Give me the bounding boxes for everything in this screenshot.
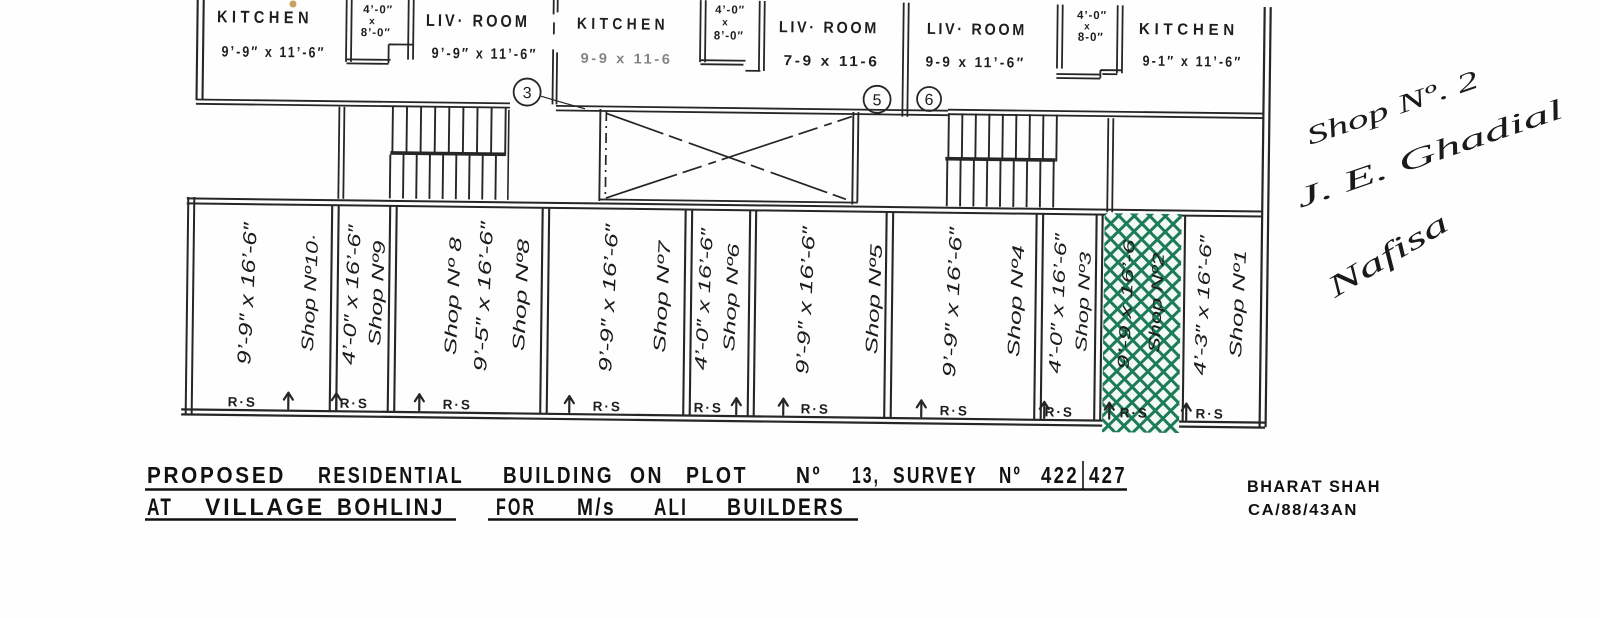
svg-text:R·S: R·S: [593, 399, 622, 414]
svg-text:4’-0″ x 16’-6″: 4’-0″ x 16’-6″: [1045, 232, 1071, 374]
svg-text:Nº: Nº: [796, 462, 822, 488]
svg-text:8’-0″: 8’-0″: [714, 28, 744, 42]
svg-text:R·S: R·S: [1196, 406, 1225, 421]
svg-text:9’-9″ x 16’-6″: 9’-9″ x 16’-6″: [595, 223, 622, 373]
svg-text:R·S: R·S: [443, 397, 472, 412]
svg-text:Nafisa: Nafisa: [1320, 206, 1454, 305]
svg-text:Shop Nº7: Shop Nº7: [650, 240, 674, 354]
svg-text:R·S: R·S: [1045, 404, 1074, 419]
svg-text:LIV· ROOM: LIV· ROOM: [927, 21, 1027, 39]
svg-text:BUILDERS: BUILDERS: [727, 494, 845, 521]
svg-text:9’-9″ x 16’-6″: 9’-9″ x 16’-6″: [792, 225, 819, 375]
svg-text:KITCHEN: KITCHEN: [217, 7, 313, 27]
svg-text:ON: ON: [630, 462, 664, 488]
svg-text:8’-0″: 8’-0″: [361, 27, 391, 39]
svg-text:Shop Nº4: Shop Nº4: [1004, 245, 1028, 358]
svg-text:4’-0″ x 16’-6″: 4’-0″ x 16’-6″: [691, 226, 717, 370]
svg-text:R·S: R·S: [801, 401, 830, 416]
svg-text:FOR: FOR: [496, 494, 536, 521]
svg-text:9’-9″ x 16’-6″: 9’-9″ x 16’-6″: [234, 221, 262, 365]
svg-text:9-9 x 11-6: 9-9 x 11-6: [580, 50, 672, 67]
svg-text:R·S: R·S: [228, 394, 257, 409]
svg-text:BHARAT SHAH: BHARAT SHAH: [1247, 478, 1381, 496]
svg-text:9-1″ x 11’-6″: 9-1″ x 11’-6″: [1142, 54, 1242, 71]
svg-text:4’-0″: 4’-0″: [715, 4, 745, 16]
svg-text:KITCHEN: KITCHEN: [1139, 21, 1239, 39]
svg-text:VILLAGE: VILLAGE: [205, 494, 325, 521]
svg-text:Shop Nº10·: Shop Nº10·: [298, 233, 323, 352]
svg-text:RESIDENTIAL: RESIDENTIAL: [318, 462, 464, 488]
svg-text:ALI: ALI: [654, 494, 688, 521]
svg-text:4’-0″ x 16’-6″: 4’-0″ x 16’-6″: [338, 224, 365, 366]
svg-text:CA/88/43AN: CA/88/43AN: [1248, 502, 1358, 519]
svg-text:BUILDING: BUILDING: [503, 462, 614, 488]
svg-text:LIV· ROOM: LIV· ROOM: [779, 19, 879, 37]
svg-text:AT: AT: [147, 494, 173, 521]
svg-text:PLOT: PLOT: [686, 462, 748, 488]
svg-text:8-0″: 8-0″: [1078, 30, 1104, 44]
svg-text:R·S: R·S: [340, 396, 369, 411]
svg-text:4’-0″: 4’-0″: [363, 4, 393, 16]
svg-text:9’-9″ x 16’-6″: 9’-9″ x 16’-6″: [939, 226, 966, 378]
svg-text:Shop Nº6: Shop Nº6: [721, 243, 743, 352]
svg-text:Shop Nº3: Shop Nº3: [1073, 251, 1095, 352]
svg-text:9’-9″ x 11’-6″: 9’-9″ x 11’-6″: [221, 43, 325, 61]
svg-text:KITCHEN: KITCHEN: [577, 16, 669, 34]
svg-text:SURVEY: SURVEY: [893, 462, 978, 488]
svg-text:PROPOSED: PROPOSED: [147, 462, 286, 488]
svg-text:3: 3: [523, 85, 532, 102]
svg-text:x: x: [722, 17, 728, 28]
svg-text:BOHLINJ: BOHLINJ: [337, 494, 445, 521]
svg-text:4’-3″ x 16’-6″: 4’-3″ x 16’-6″: [1190, 234, 1216, 376]
svg-text:LIV· ROOM: LIV· ROOM: [426, 11, 530, 31]
svg-text:x: x: [369, 16, 375, 27]
svg-text:7-9 x 11-6: 7-9 x 11-6: [783, 53, 879, 70]
svg-text:Nº: Nº: [999, 462, 1022, 488]
svg-text:9-9 x 11’-6″: 9-9 x 11’-6″: [925, 54, 1025, 71]
svg-text:R·S: R·S: [694, 400, 723, 415]
svg-text:R·S: R·S: [940, 403, 969, 418]
svg-text:R·S: R·S: [1120, 405, 1149, 420]
svg-text:13,: 13,: [852, 462, 880, 488]
svg-text:Shop Nº8: Shop Nº8: [509, 238, 533, 352]
svg-text:Shop Nº5: Shop Nº5: [862, 243, 886, 355]
svg-text:M/s: M/s: [577, 494, 616, 521]
svg-text:Shop Nº 8: Shop Nº 8: [441, 236, 466, 356]
svg-text:6: 6: [924, 92, 933, 109]
svg-text:Shop Nº9: Shop Nº9: [365, 240, 389, 347]
svg-text:5: 5: [872, 92, 881, 109]
svg-text:422: 422: [1041, 462, 1079, 488]
svg-text:9’-9″ x 11’-6″: 9’-9″ x 11’-6″: [431, 45, 537, 63]
svg-text:4’-0″: 4’-0″: [1077, 10, 1107, 22]
svg-text:Shop Nº1: Shop Nº1: [1226, 249, 1250, 358]
svg-text:9’-5″ x 16’-6″: 9’-5″ x 16’-6″: [470, 220, 497, 372]
svg-text:427: 427: [1089, 462, 1127, 488]
